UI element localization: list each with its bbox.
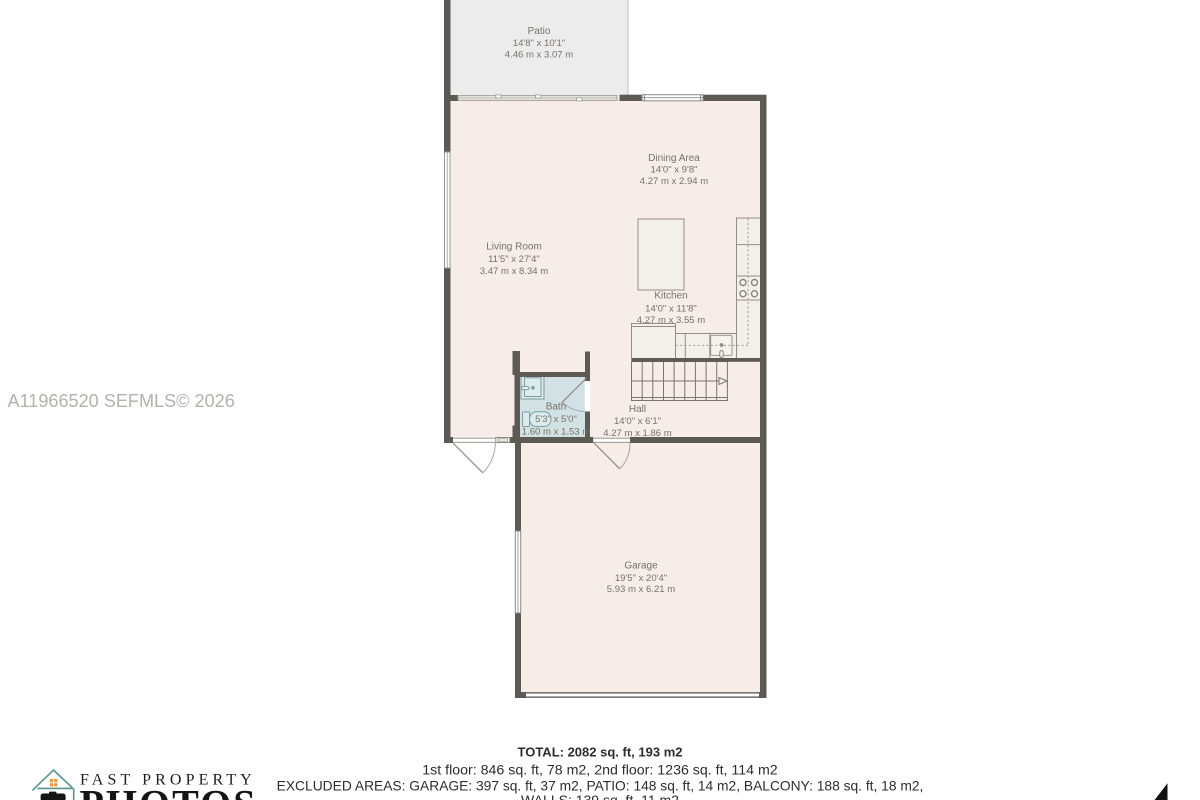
svg-text:5'3" x 5'0": 5'3" x 5'0" [535, 414, 577, 425]
svg-text:Bath: Bath [546, 402, 567, 413]
svg-text:4.46 m x 3.07 m: 4.46 m x 3.07 m [505, 50, 573, 61]
svg-text:Kitchen: Kitchen [654, 291, 687, 302]
svg-text:4.27 m x 3.55 m: 4.27 m x 3.55 m [637, 315, 705, 326]
svg-text:1.60 m x 1.53 m: 1.60 m x 1.53 m [522, 427, 590, 438]
svg-text:Garage: Garage [624, 561, 658, 572]
svg-text:5.93 m x 6.21 m: 5.93 m x 6.21 m [607, 584, 675, 595]
svg-text:1st floor: 846 sq. ft, 78 m2,: 1st floor: 846 sq. ft, 78 m2, 2nd floor:… [422, 763, 778, 779]
svg-text:Hall: Hall [629, 404, 646, 415]
svg-text:14'8" x 10'1": 14'8" x 10'1" [513, 38, 565, 49]
svg-text:A11966520 SEFMLS© 2026: A11966520 SEFMLS© 2026 [8, 391, 235, 411]
svg-text:4.27 m x 2.94 m: 4.27 m x 2.94 m [640, 176, 708, 187]
svg-text:Dining Area: Dining Area [648, 153, 700, 164]
svg-text:14'0" x 11'8": 14'0" x 11'8" [645, 304, 697, 315]
svg-text:19'5" x 20'4": 19'5" x 20'4" [615, 573, 667, 584]
svg-text:14'0" x 9'8": 14'0" x 9'8" [650, 165, 697, 176]
svg-text:Living Room: Living Room [486, 242, 542, 253]
svg-text:Patio: Patio [528, 26, 551, 37]
svg-text:WALLS: 139 sq. ft, 11 m2: WALLS: 139 sq. ft, 11 m2 [521, 792, 679, 800]
svg-text:14'0" x 6'1": 14'0" x 6'1" [614, 416, 661, 427]
svg-text:11'5" x 27'4": 11'5" x 27'4" [488, 254, 540, 265]
svg-text:TOTAL: 2082 sq. ft, 193 m2: TOTAL: 2082 sq. ft, 193 m2 [518, 744, 683, 759]
svg-text:PHOTOS: PHOTOS [80, 781, 258, 800]
svg-text:4.27 m x 1.86 m: 4.27 m x 1.86 m [603, 428, 671, 439]
svg-text:3.47 m x 8.34 m: 3.47 m x 8.34 m [480, 266, 548, 277]
